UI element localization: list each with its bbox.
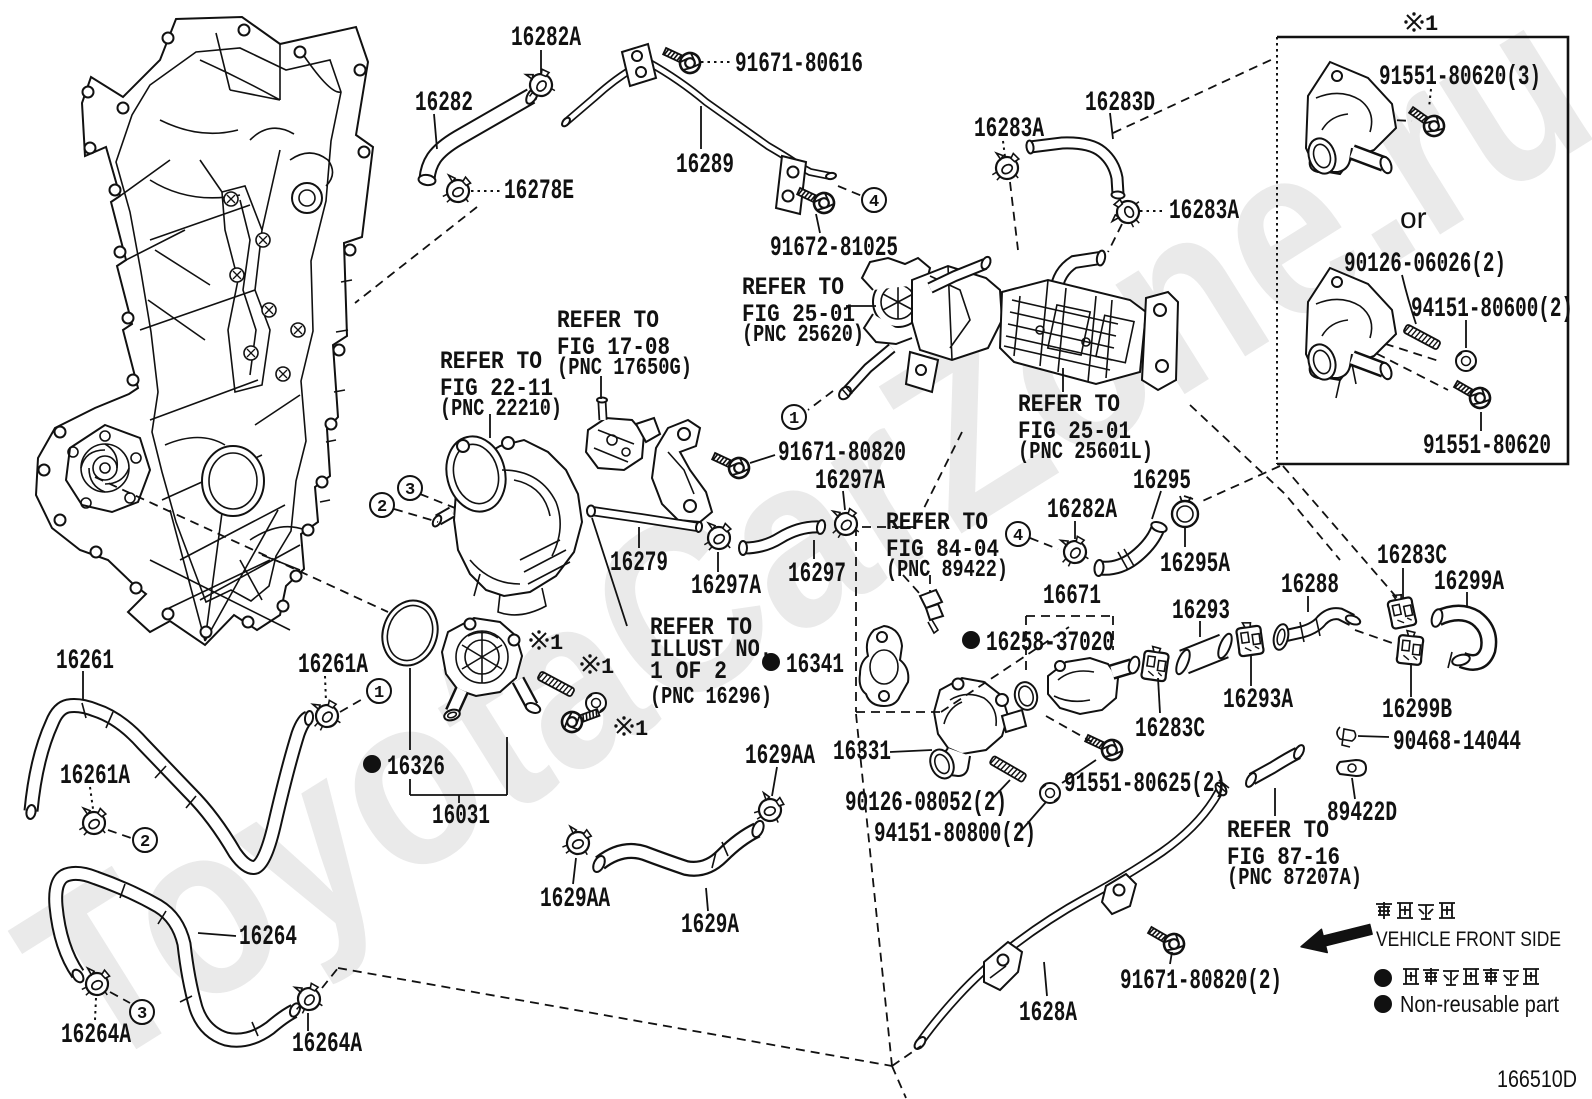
svg-text:16289: 16289 [676, 150, 734, 181]
svg-text:16282: 16282 [415, 88, 473, 119]
svg-text:or: or [1400, 202, 1427, 235]
svg-text:16671: 16671 [1043, 581, 1101, 612]
svg-text:2: 2 [377, 498, 387, 517]
svg-text:VEHICLE FRONT SIDE: VEHICLE FRONT SIDE [1376, 927, 1561, 951]
svg-text:REFER TO: REFER TO [1018, 390, 1120, 419]
svg-text:REFER TO: REFER TO [557, 306, 659, 335]
svg-text:(PNC 87207A): (PNC 87207A) [1227, 865, 1362, 892]
svg-text:16283D: 16283D [1085, 88, 1155, 119]
svg-text:166510D: 166510D [1497, 1066, 1577, 1093]
svg-text:1: 1 [635, 717, 648, 742]
svg-text:16261: 16261 [56, 646, 114, 677]
svg-text:91551-80620(3): 91551-80620(3) [1379, 62, 1541, 93]
svg-text:16299B: 16299B [1382, 695, 1452, 726]
svg-text:1629A: 1629A [681, 910, 739, 941]
svg-text:1: 1 [550, 631, 563, 656]
svg-text:REFER TO: REFER TO [886, 508, 988, 537]
svg-text:1 OF 2: 1 OF 2 [650, 657, 727, 686]
svg-text:(PNC 17650G): (PNC 17650G) [557, 355, 692, 382]
svg-text:Non-reusable part: Non-reusable part [1400, 991, 1559, 1017]
svg-text:16295: 16295 [1133, 466, 1191, 497]
svg-text:1: 1 [1425, 12, 1438, 37]
svg-text:16264A: 16264A [61, 1020, 131, 1051]
svg-text:16297: 16297 [788, 559, 846, 590]
svg-text:4: 4 [869, 193, 879, 212]
svg-text:2: 2 [140, 833, 150, 852]
svg-text:90126-08052(2): 90126-08052(2) [845, 788, 1007, 819]
svg-text:16264: 16264 [239, 922, 297, 953]
svg-text:1: 1 [374, 684, 384, 703]
svg-text:16297A: 16297A [815, 466, 885, 497]
svg-text:16282A: 16282A [1047, 495, 1117, 526]
svg-text:3: 3 [137, 1005, 147, 1024]
svg-text:90126-06026(2): 90126-06026(2) [1344, 249, 1506, 280]
svg-text:1629AA: 1629AA [745, 741, 815, 772]
svg-text:16283A: 16283A [1169, 196, 1239, 227]
svg-text:16295A: 16295A [1160, 549, 1230, 580]
svg-text:16279: 16279 [610, 548, 668, 579]
svg-text:(PNC 25620): (PNC 25620) [742, 322, 864, 349]
svg-text:REFER TO: REFER TO [440, 347, 542, 376]
svg-text:91551-80620: 91551-80620 [1423, 431, 1551, 462]
svg-text:16297A: 16297A [691, 571, 761, 602]
svg-text:1: 1 [789, 410, 799, 429]
svg-text:3: 3 [405, 481, 415, 500]
svg-text:1628A: 1628A [1019, 998, 1077, 1029]
svg-text:16283A: 16283A [974, 114, 1044, 145]
svg-text:16331: 16331 [833, 737, 891, 768]
svg-text:(PNC 22210): (PNC 22210) [440, 396, 562, 423]
svg-text:91671-80820(2): 91671-80820(2) [1120, 966, 1282, 997]
svg-text:(PNC 25601L): (PNC 25601L) [1018, 439, 1153, 466]
svg-text:16258-37020: 16258-37020 [986, 628, 1114, 659]
svg-text:REFER TO: REFER TO [742, 273, 844, 302]
svg-text:1: 1 [601, 655, 614, 680]
svg-text:16293A: 16293A [1223, 685, 1293, 716]
svg-text:91551-80625(2): 91551-80625(2) [1064, 769, 1226, 800]
svg-text:94151-80800(2): 94151-80800(2) [874, 819, 1036, 850]
svg-text:16278E: 16278E [504, 176, 574, 207]
svg-text:16299A: 16299A [1434, 567, 1504, 598]
svg-text:16326: 16326 [387, 752, 445, 783]
svg-text:1629AA: 1629AA [540, 884, 610, 915]
svg-text:16283C: 16283C [1135, 714, 1205, 745]
svg-text:(PNC 16296): (PNC 16296) [650, 684, 772, 711]
svg-text:16282A: 16282A [511, 23, 581, 54]
svg-text:16293: 16293 [1172, 596, 1230, 627]
svg-text:16261A: 16261A [60, 761, 130, 792]
svg-text:90468-14044: 90468-14044 [1393, 727, 1521, 758]
svg-text:91671-80616: 91671-80616 [735, 49, 863, 80]
svg-text:(PNC 89422): (PNC 89422) [886, 557, 1008, 584]
svg-text:91672-81025: 91672-81025 [770, 233, 898, 264]
svg-text:4: 4 [1013, 527, 1023, 546]
svg-text:16261A: 16261A [298, 650, 368, 681]
svg-text:REFER TO: REFER TO [1227, 816, 1329, 845]
svg-text:94151-80600(2): 94151-80600(2) [1411, 294, 1573, 325]
svg-text:16264A: 16264A [292, 1029, 362, 1060]
svg-text:16288: 16288 [1281, 570, 1339, 601]
svg-text:91671-80820: 91671-80820 [778, 438, 906, 469]
svg-text:89422D: 89422D [1327, 798, 1397, 829]
svg-text:16031: 16031 [432, 801, 490, 832]
svg-text:16341: 16341 [786, 650, 844, 681]
